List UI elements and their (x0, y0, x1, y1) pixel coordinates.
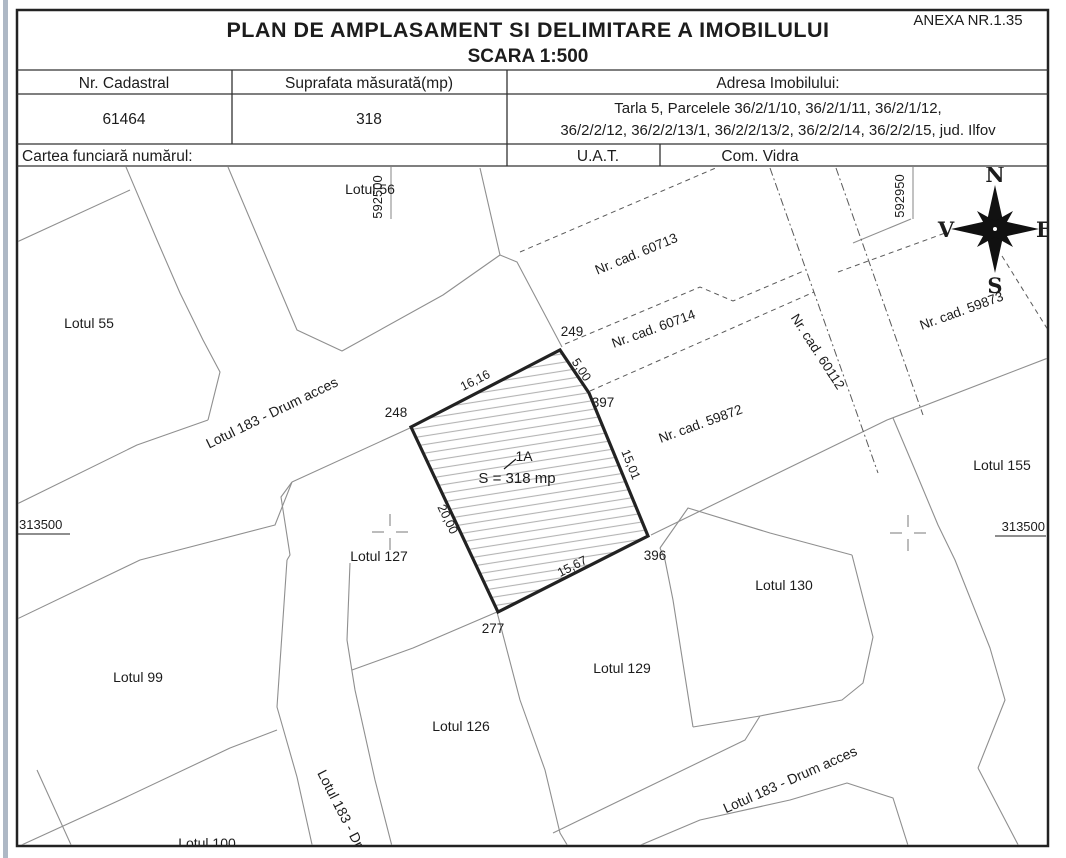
value-nr-cadastral: 61464 (102, 111, 145, 128)
col-suprafata: Suprafata măsurată(mp) (285, 75, 453, 92)
grid-cross-west (372, 514, 408, 550)
map-area: Lotul 55 Lotul 56 Lotul 99 Lotul 100 Lot… (15, 162, 1052, 858)
cadastral-plan-sheet: PLAN DE AMPLASAMENT SI DELIMITARE A IMOB… (0, 0, 1066, 858)
label-lotul-155: Lotul 155 (973, 457, 1031, 473)
compass-center (993, 227, 997, 231)
plan-drawing: PLAN DE AMPLASAMENT SI DELIMITARE A IMOB… (0, 0, 1066, 858)
col-nr-cadastral: Nr. Cadastral (79, 75, 169, 92)
label-nr-cad-60713: Nr. cad. 60713 (593, 230, 680, 277)
label-lotul-126: Lotul 126 (432, 718, 490, 734)
label-nr-cad-59872: Nr. cad. 59872 (657, 402, 745, 446)
parcel-area-label: S = 318 mp (478, 470, 555, 487)
compass-rose: N E S V (937, 162, 1052, 298)
value-suprafata: 318 (356, 111, 382, 128)
label-lotul-129: Lotul 129 (593, 660, 651, 676)
page-title: PLAN DE AMPLASAMENT SI DELIMITARE A IMOB… (226, 18, 829, 42)
label-lotul-55: Lotul 55 (64, 315, 114, 331)
point-249: 249 (561, 324, 584, 339)
compass-west: V (937, 217, 955, 242)
label-road-access-southeast: Lotul 183 - Drum acces (721, 743, 860, 816)
parcel-id-label: 1A (515, 448, 533, 464)
label-lotul-99: Lotul 99 (113, 669, 163, 685)
point-248: 248 (385, 405, 408, 420)
point-396: 396 (644, 548, 667, 563)
label-easting-592950: 592950 (892, 174, 907, 217)
point-397: 397 (592, 395, 615, 410)
label-lotul-127: Lotul 127 (350, 548, 408, 564)
compass-east: E (1036, 217, 1052, 242)
scale-label: SCARA 1:500 (468, 46, 589, 67)
label-lotul-100: Lotul 100 (178, 835, 236, 851)
label-nr-cad-60112: Nr. cad. 60112 (788, 311, 848, 392)
label-easting-592500: 592500 (370, 175, 385, 218)
info-table: Nr. Cadastral Suprafata măsurată(mp) Adr… (17, 70, 1048, 166)
label-uat: U.A.T. (577, 148, 619, 165)
label-road-access-south: Lotul 183 - Drum acces (314, 767, 394, 858)
title-block: PLAN DE AMPLASAMENT SI DELIMITARE A IMOB… (226, 12, 1022, 67)
scan-edge-strip (3, 0, 8, 858)
compass-south: S (987, 273, 1002, 298)
label-northing-west: 313500 (19, 517, 62, 532)
label-northing-east: 313500 (1002, 519, 1045, 534)
value-adresa-line1: Tarla 5, Parcelele 36/2/1/10, 36/2/1/11,… (614, 100, 941, 117)
anexa-label: ANEXA NR.1.35 (913, 12, 1022, 29)
label-lotul-130: Lotul 130 (755, 577, 813, 593)
col-adresa: Adresa Imobilului: (716, 75, 839, 92)
point-277: 277 (482, 621, 505, 636)
value-adresa-line2: 36/2/2/12, 36/2/2/13/1, 36/2/2/13/2, 36/… (560, 122, 996, 139)
label-road-access-west: Lotul 183 - Drum acces (203, 374, 340, 452)
grid-cross-east (890, 515, 926, 551)
value-comuna: Com. Vidra (721, 148, 799, 165)
label-cartea-funciara: Cartea funciară numărul: (22, 148, 193, 165)
label-nr-cad-60714: Nr. cad. 60714 (610, 307, 698, 351)
